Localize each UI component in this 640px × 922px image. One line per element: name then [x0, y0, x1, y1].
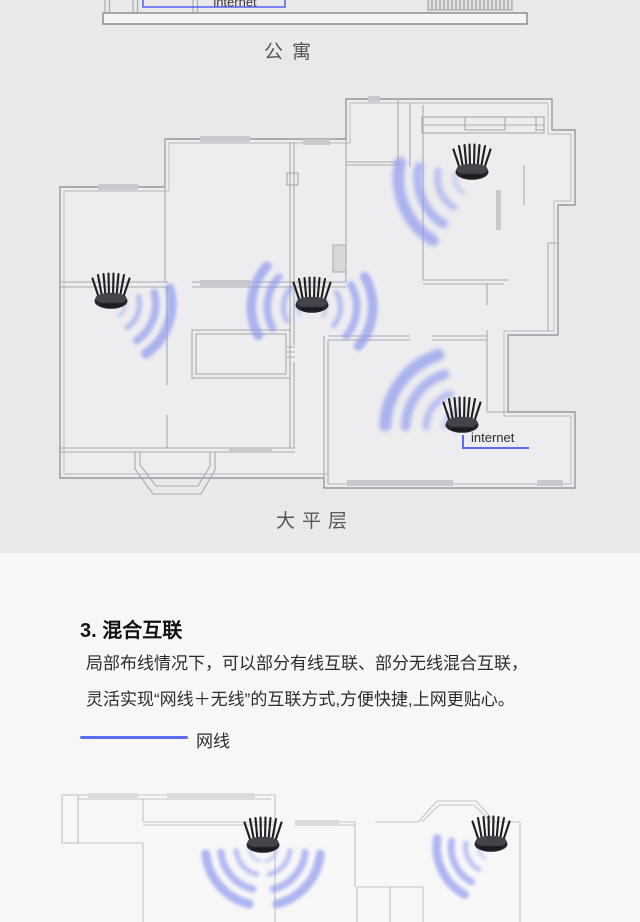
wifi-signals-bottom [198, 824, 495, 911]
wall-pillar [333, 245, 346, 272]
bottom-floor-plan-partial [58, 790, 538, 922]
router-icon [245, 818, 282, 853]
legend-cable-swatch [80, 736, 188, 739]
internet-label-flat: internet [471, 430, 515, 445]
bottom-plan-windows [88, 793, 339, 825]
legend-cable-label: 网线 [196, 727, 230, 752]
apartment-bottom-wall-bar [103, 13, 527, 24]
flat-floor-plan: internet [50, 90, 595, 520]
caption-flat: 大平层 [276, 506, 354, 533]
section-heading: 3. 混合互联 [80, 614, 182, 643]
stairs-hatch-block [428, 0, 512, 10]
internet-label-top: internet [213, 0, 257, 10]
section-body-line2: 灵活实现“网线＋无线”的互联方式,方便快捷,上网更贴心。 [86, 685, 515, 710]
apartment-floor-plan-partial: internet [95, 0, 540, 26]
section-body-line1: 局部布线情况下，可以部分有线互联、部分无线混合互联， [86, 649, 528, 674]
caption-apartment: 公寓 [264, 37, 320, 64]
